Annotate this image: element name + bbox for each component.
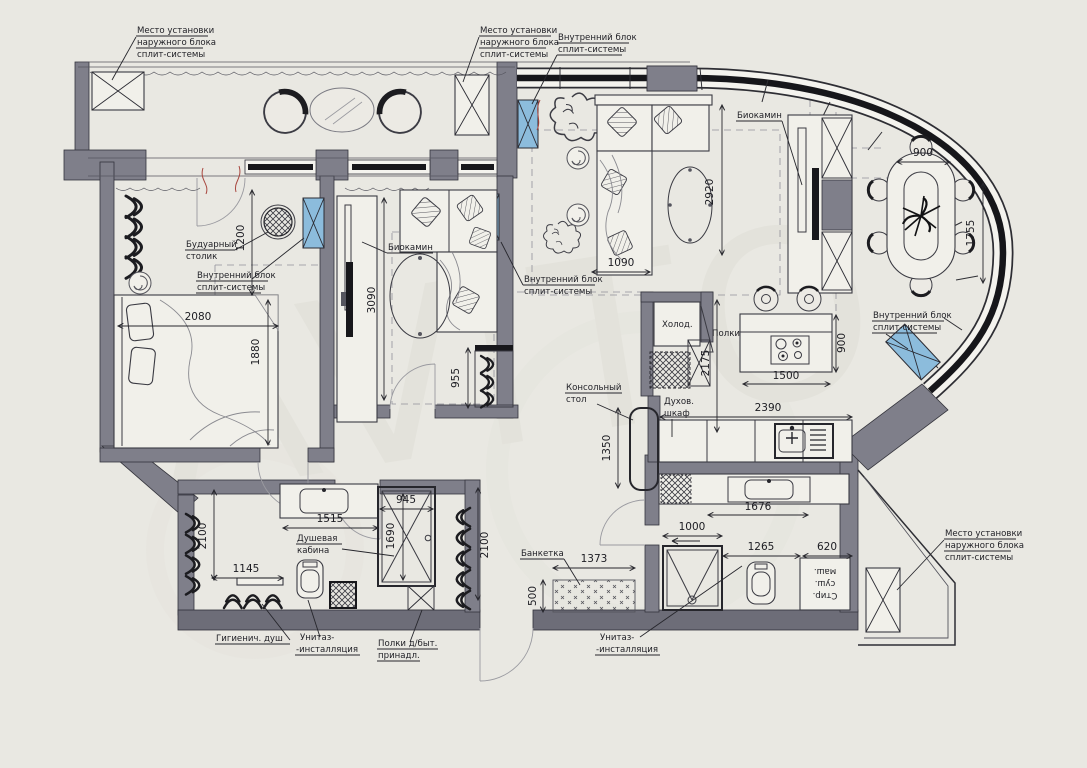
side-table-2 [567,204,589,226]
svg-text:шкаф: шкаф [664,409,690,419]
balcony-table [310,88,374,132]
bar-stool-2 [797,287,821,311]
bench [553,580,635,612]
guest-vanity [659,474,849,504]
svg-text:сплит-системы: сплит-системы [873,323,941,333]
svg-text:сплит-системы: сплит-системы [197,283,265,293]
dim-rad-right: 2100 [479,532,491,559]
bidet-unit [330,582,356,608]
window-band-bedroom2a [348,160,430,174]
svg-text:кабина: кабина [297,546,329,556]
guest-stool [661,475,691,503]
dim-dining-depth: 1755 [965,220,977,247]
svg-text:Унитаз-: Унитаз- [300,633,334,643]
svg-text:Банкетка: Банкетка [521,549,564,559]
dim-shower-master-depth: 1690 [385,523,397,550]
outdoor-ac-mid [455,75,489,135]
wall-kitchen-guestbath [658,462,852,474]
label-fridge: Холод. [662,320,693,330]
dim-vanity-guest: 1676 [745,501,772,513]
svg-text:Место установки: Место установки [137,26,214,36]
svg-text:Будуарный: Будуарный [186,240,237,250]
outdoor-ac-left [92,72,144,110]
wall-guestbath-left-b [645,545,659,612]
bar-stool-1 [754,287,778,311]
indoor-ac-bedroom1 [303,198,324,248]
svg-text:наружного блока: наружного блока [137,38,216,48]
dim-shower-guest: 1000 [679,521,706,533]
kitchen-island [740,314,832,372]
dim-hyg-zone: 1145 [233,563,260,575]
svg-text:Унитаз-: Унитаз- [600,633,634,643]
bedroom1-pouf [129,272,151,294]
dim-shower-master-width: 945 [396,494,416,506]
svg-text:Место установки: Место установки [480,26,557,36]
kitchen-counter [659,420,852,462]
svg-text:Биокамин: Биокамин [388,243,433,253]
dim-sofa-width: 1090 [608,257,635,269]
svg-text:Внутренний блок: Внутренний блок [873,311,952,321]
dim-island-width: 1500 [773,370,800,382]
svg-text:-инсталляция: -инсталляция [296,645,358,655]
dim-dining-width: 900 [913,147,933,159]
washer-label-2: суш. [815,578,835,588]
washer-dryer: Стир. суш. маш. [800,558,850,610]
dim-washer: 620 [817,541,837,553]
svg-text:наружного блока: наружного блока [480,38,559,48]
dim-living-depth: 2920 [704,179,716,206]
svg-text:Место установки: Место установки [945,529,1022,539]
living-tv-wall [788,115,852,293]
washer-label-1: Стир. [813,590,838,600]
side-table-1 [567,147,589,169]
wall-pier-1 [316,150,348,180]
master-toilet [297,560,323,598]
dim-console: 1350 [601,435,613,462]
indoor-ac-living [518,100,538,148]
svg-text:Биокамин: Биокамин [737,111,782,121]
svg-text:Внутренний блок: Внутренний блок [197,271,276,281]
dim-boudoir-zone: 1200 [235,225,247,252]
wall-bottom-east [533,610,858,630]
dim-bench-width: 1373 [581,553,608,565]
dim-bench-depth: 500 [527,586,539,606]
dim-kitchen-run: 2390 [755,402,782,414]
dim-bed-width: 2080 [185,311,212,323]
svg-text:Внутренний блок: Внутренний блок [558,33,637,43]
kitchen-drawer-unit [650,352,690,388]
svg-text:Гигиенич. душ: Гигиенич. душ [216,634,283,644]
svg-text:-инсталляция: -инсталляция [596,645,658,655]
wall-balcony-left-pier [75,62,89,162]
dim-toilet-guest: 1265 [748,541,775,553]
dim-wardrobe: 955 [450,368,462,388]
wall-balcony-right-pier [497,62,517,178]
svg-text:сплит-системы: сплит-системы [945,553,1013,563]
wall-pier-2 [430,150,458,180]
svg-text:наружного блока: наружного блока [945,541,1024,551]
svg-text:сплит-системы: сплит-системы [524,287,592,297]
wall-bottom-west [178,610,480,630]
tv-bedroom2 [346,262,353,337]
window-band-bedroom1 [245,160,316,174]
svg-text:столик: столик [186,252,217,262]
wall-bedroom1-bottom-a [100,448,260,462]
wall-bedroom1-bottom-b [308,448,334,462]
dim-rad-left: 2100 [197,523,209,550]
dim-island-depth: 900 [836,333,848,353]
label-shelves: Полки [712,329,740,339]
tv-living [812,168,819,240]
svg-text:Консольный: Консольный [566,383,622,393]
guest-toilet [747,562,775,604]
svg-text:сплит-системы: сплит-системы [480,50,548,60]
svg-text:Душевая: Душевая [297,534,337,544]
dim-kitchen-depth: 2175 [700,350,712,377]
floor-plan-drawing: AViTO [0,0,1087,768]
washer-label-3: маш. [814,566,836,576]
svg-text:принадл.: принадл. [378,651,420,661]
svg-text:сплит-системы: сплит-системы [558,45,626,55]
svg-text:сплит-системы: сплит-системы [137,50,205,60]
dim-bedroom2-depth: 3090 [366,287,378,314]
boudoir-table [264,208,292,236]
wall-bedroom1-left [100,162,114,452]
dim-vanity-master: 1515 [317,513,344,525]
window-band-bedroom2b [458,160,497,174]
svg-text:Духов.: Духов. [664,397,694,407]
svg-text:стол: стол [566,395,586,405]
floor-plan-page: AViTO [0,0,1087,768]
svg-text:Внутренний блок: Внутренний блок [524,275,603,285]
outdoor-ac-se [866,568,900,632]
svg-text:Полки д/быт.: Полки д/быт. [378,639,437,649]
dim-bed-zone: 1880 [250,339,262,366]
